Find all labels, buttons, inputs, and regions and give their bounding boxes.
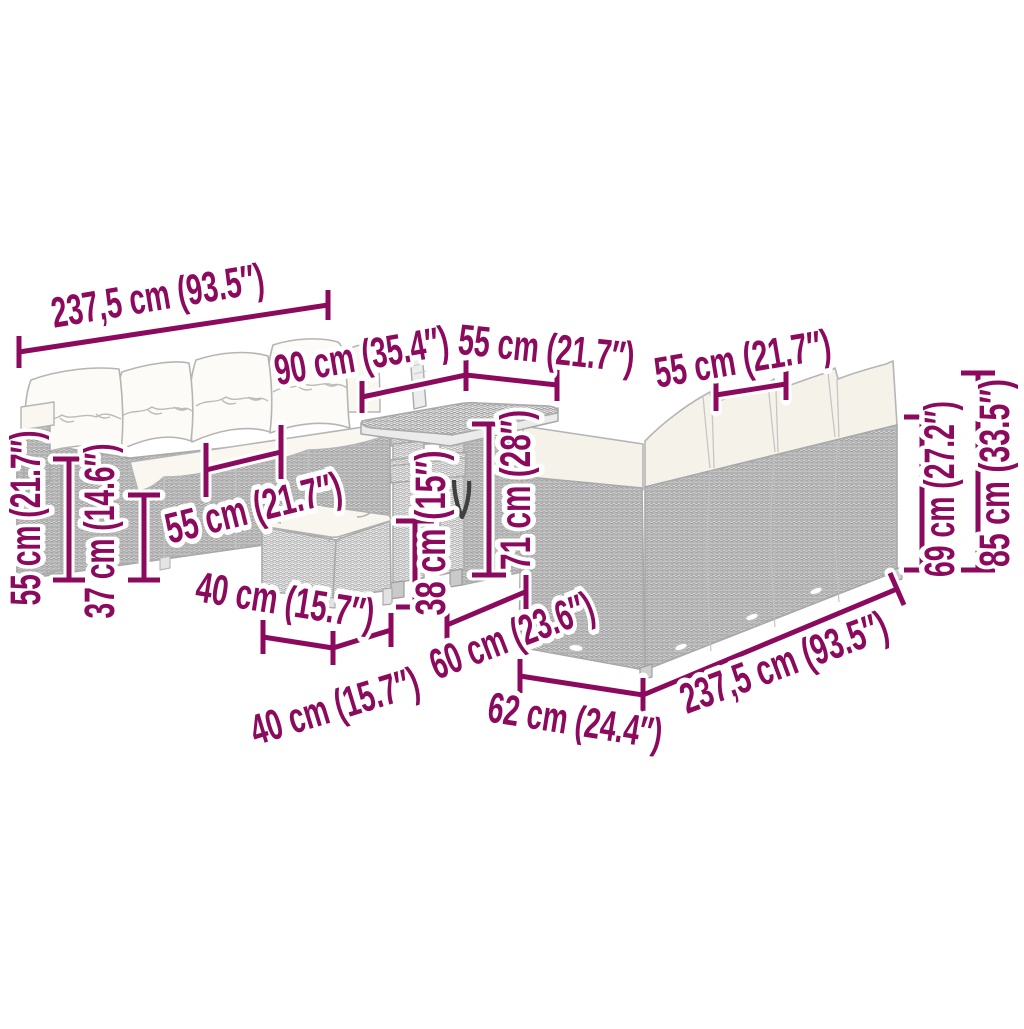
svg-text:38 cm (15″): 38 cm (15″) [407,451,455,616]
svg-text:69 cm (27.2″): 69 cm (27.2″) [916,401,964,577]
svg-text:71 cm (28″): 71 cm (28″) [492,410,540,570]
svg-text:55 cm (21.7″): 55 cm (21.7″) [2,431,50,606]
svg-text:37 cm (14.6″): 37 cm (14.6″) [76,444,124,619]
svg-text:85 cm (33.5″): 85 cm (33.5″) [971,379,1019,567]
